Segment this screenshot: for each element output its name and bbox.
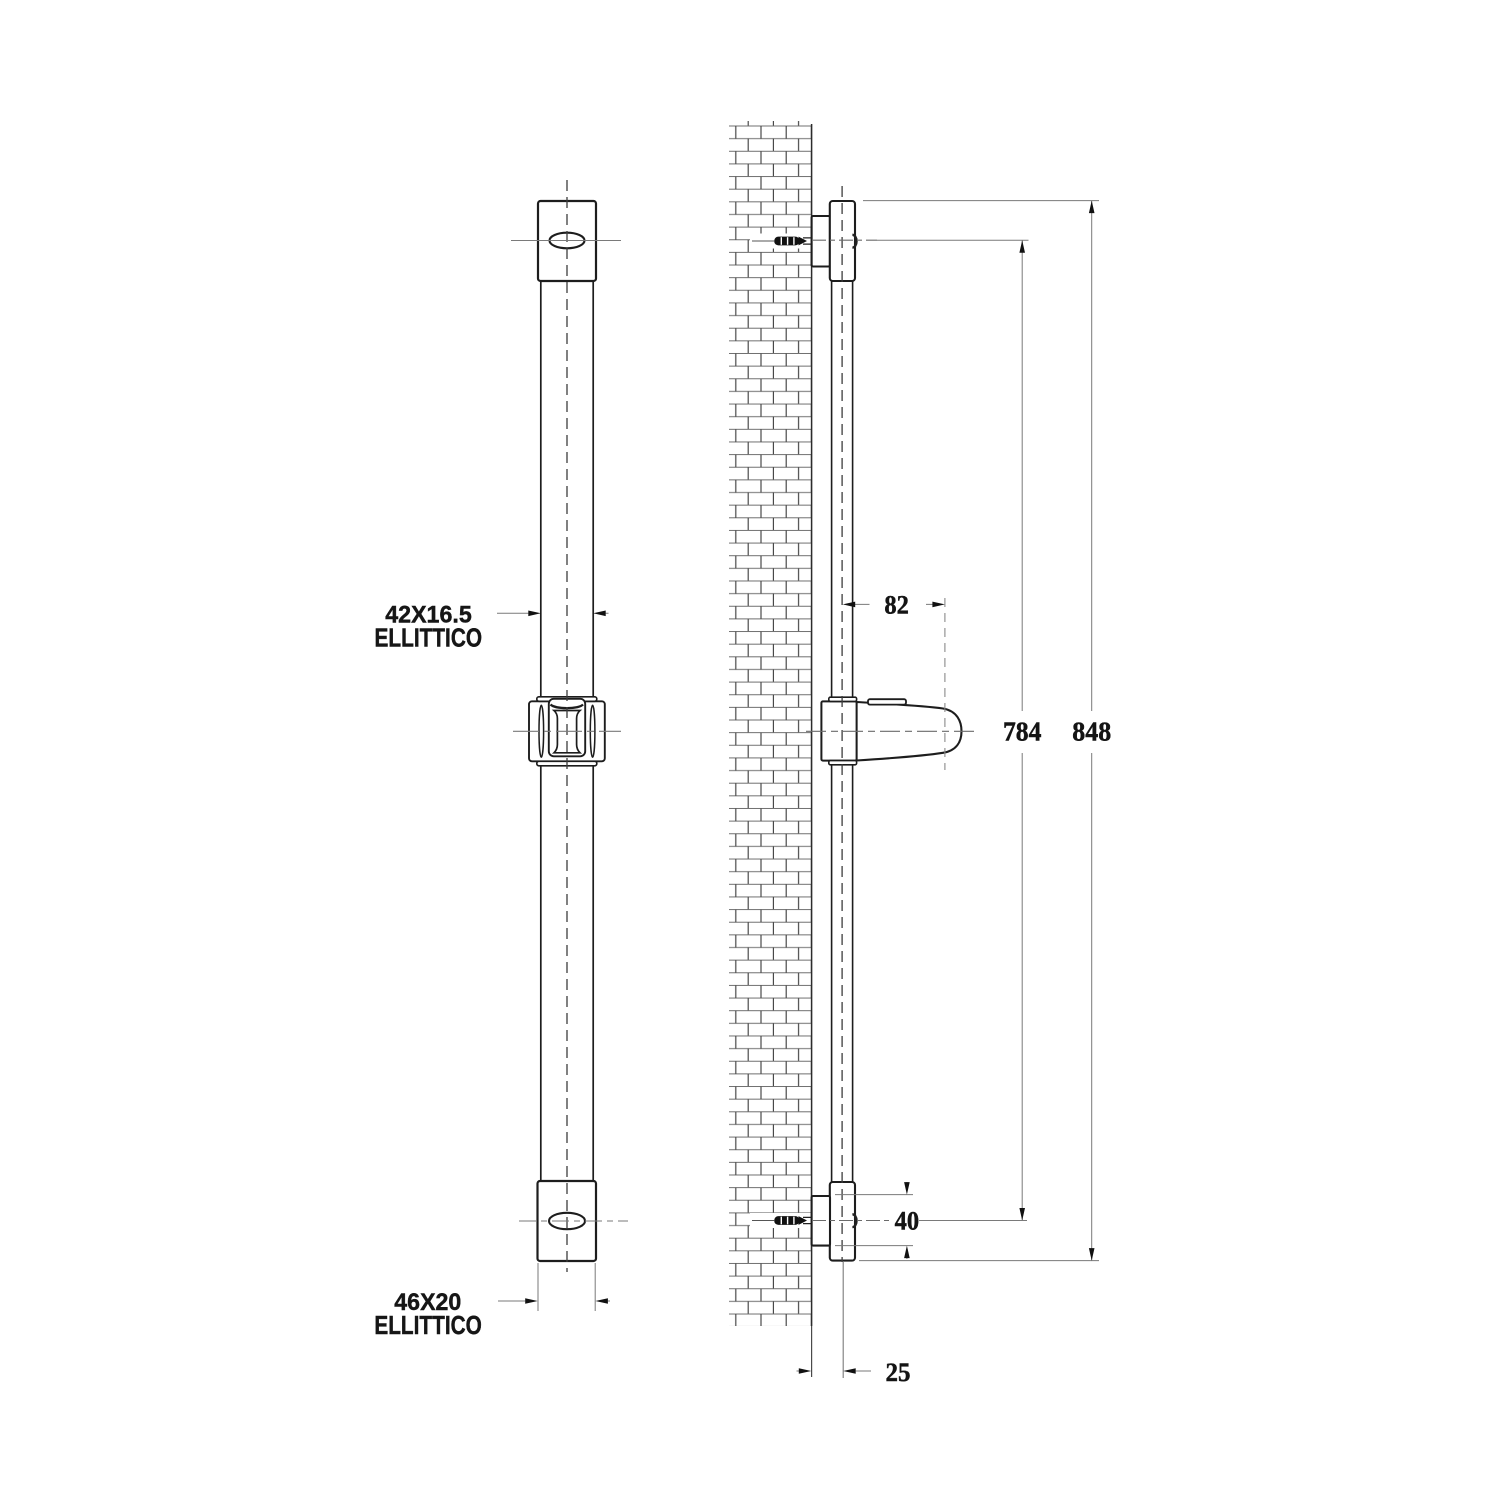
svg-text:25: 25 <box>886 1358 911 1387</box>
svg-text:ELLITTICO: ELLITTICO <box>374 1312 482 1340</box>
svg-text:82: 82 <box>884 590 909 619</box>
svg-text:848: 848 <box>1072 715 1111 746</box>
svg-text:40: 40 <box>895 1206 920 1235</box>
svg-text:ELLITTICO: ELLITTICO <box>375 625 483 653</box>
svg-text:784: 784 <box>1003 715 1042 746</box>
